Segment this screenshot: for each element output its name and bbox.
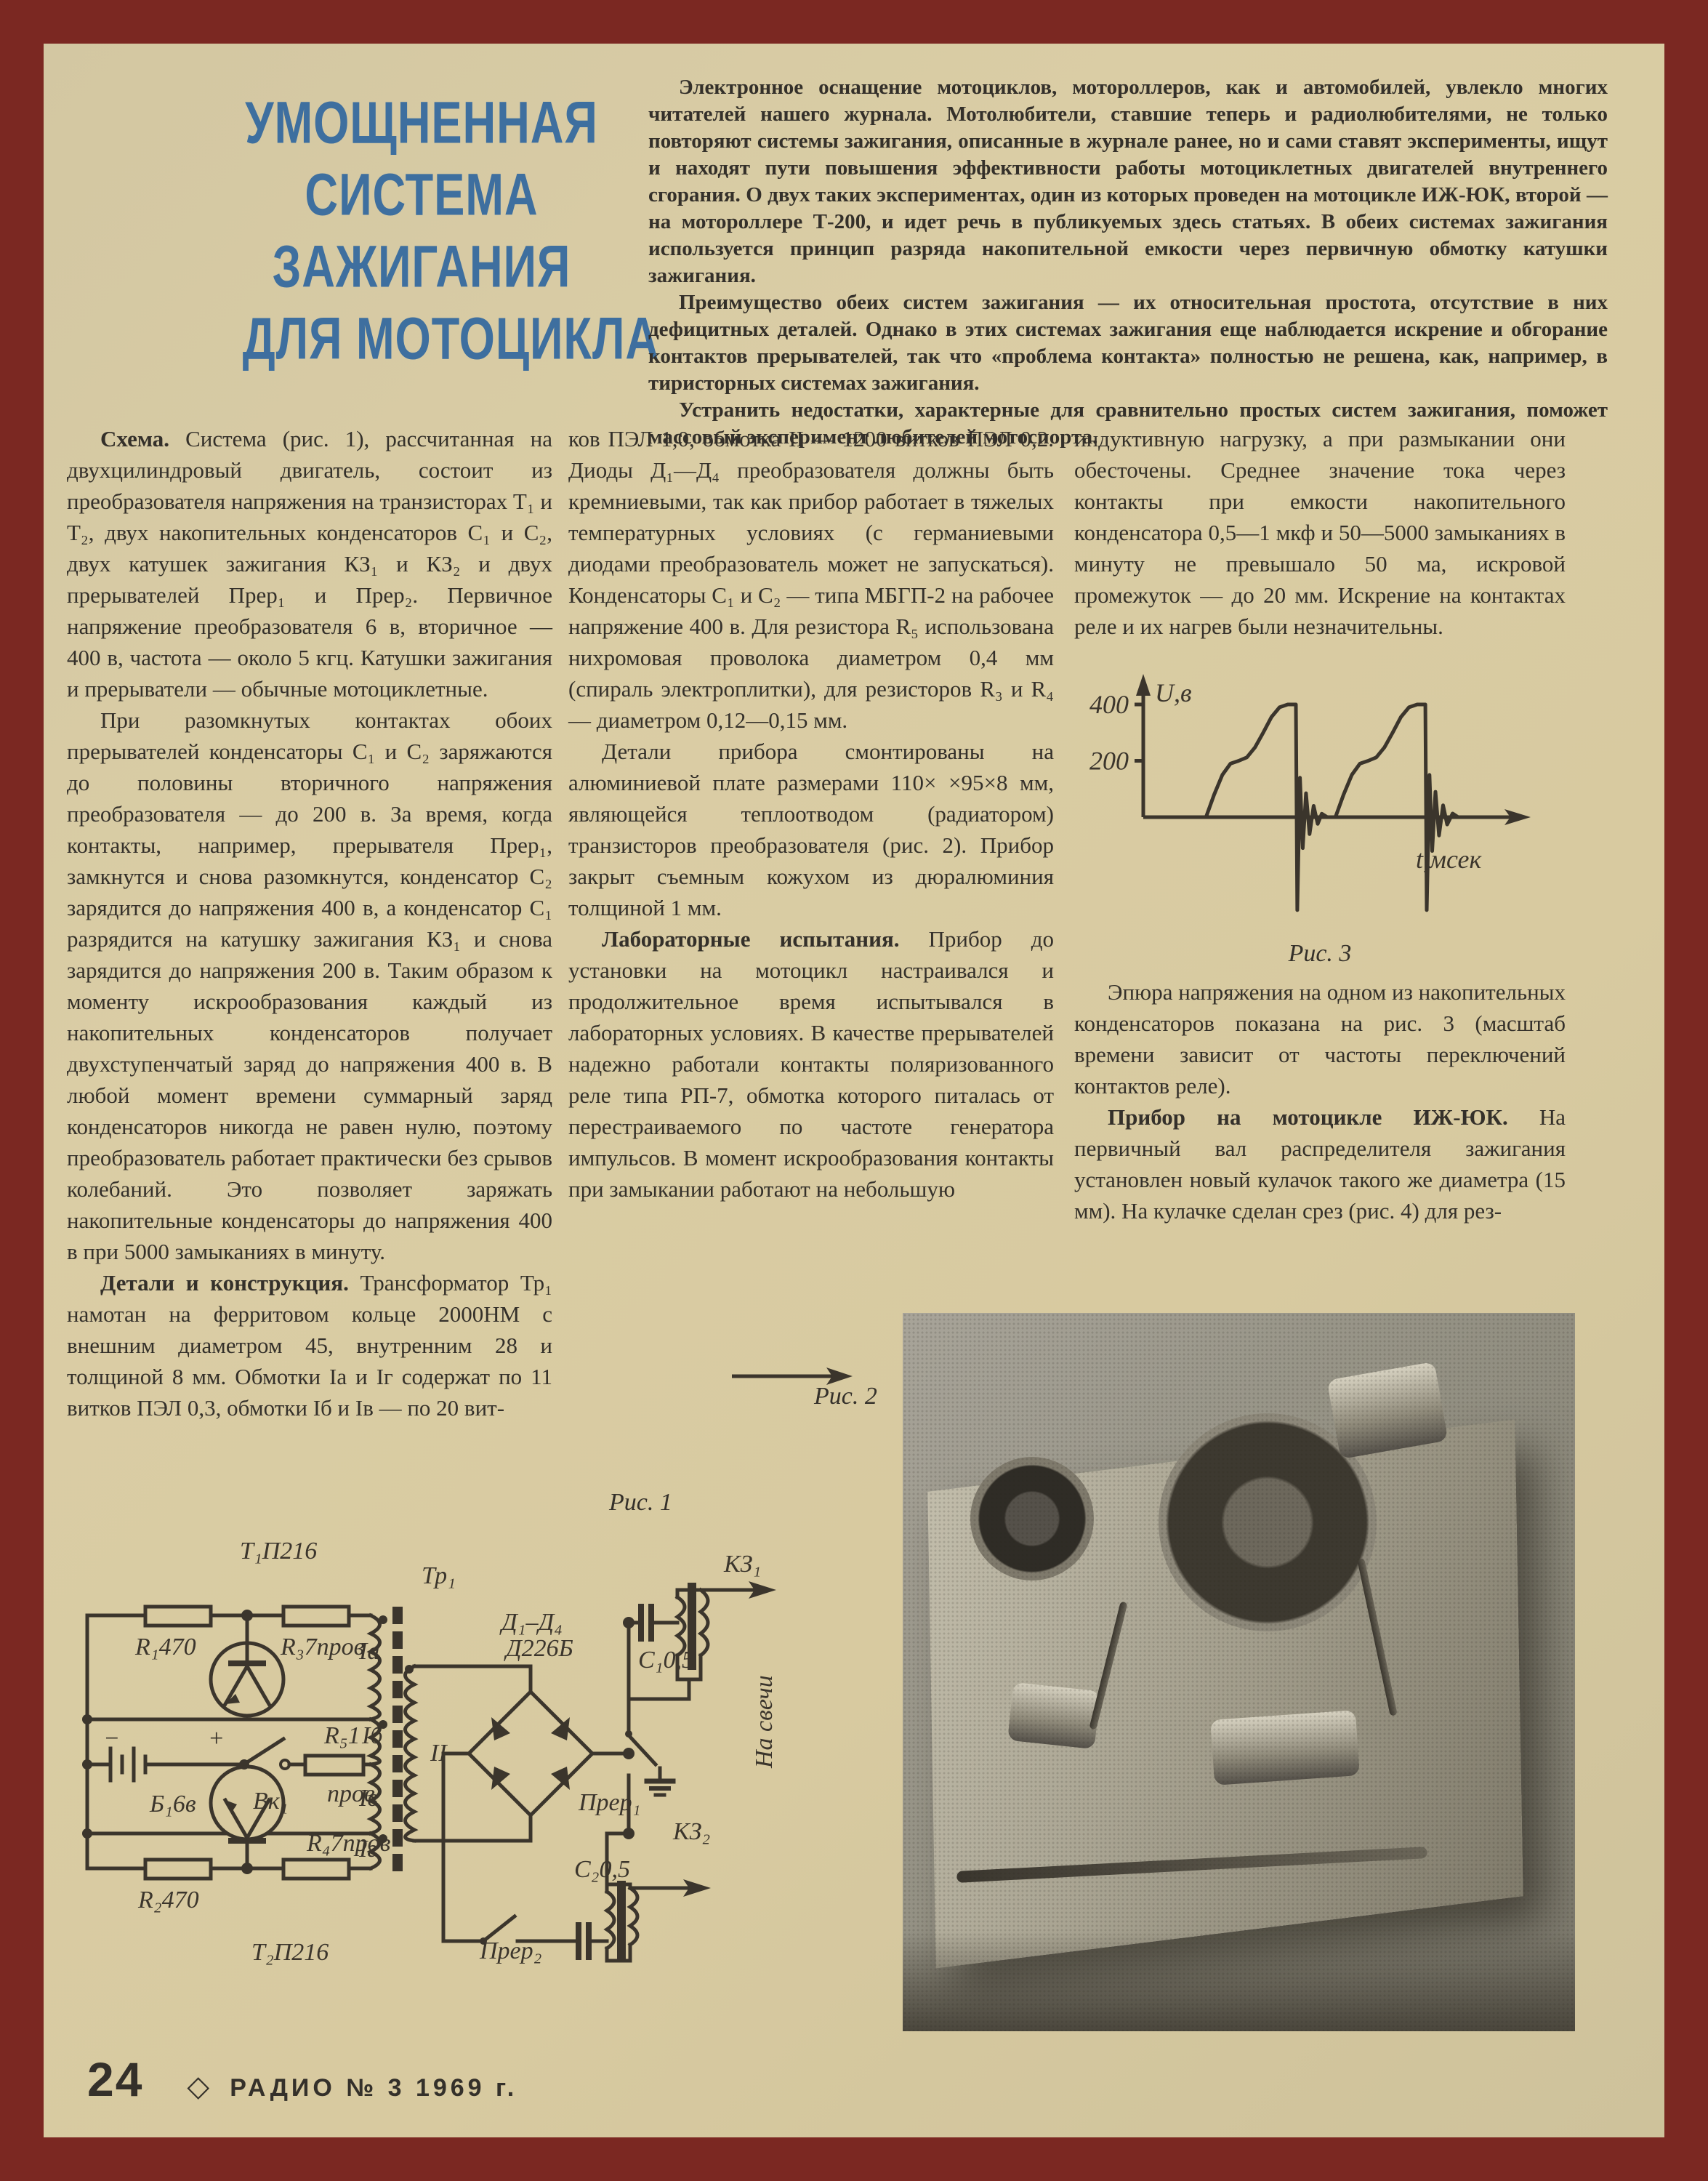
svg-text:U,в: U,в (1155, 678, 1192, 707)
photo-capacitor-can (1007, 1682, 1100, 1749)
paragraph: индуктивную нагрузку, а при размыкании о… (1074, 423, 1566, 642)
schematic-label: R₁470 (134, 1634, 196, 1660)
schematic-label: Т₁П216 (240, 1538, 317, 1565)
figure-2-caption: Рис. 2 (814, 1383, 877, 1410)
figure-2-photo-device-on-plate (903, 1313, 1575, 2031)
schematic-label: Прер₂ (479, 1937, 541, 1964)
figure-3-voltage-chart: 200400U,вt,мсек Рис. 3 (1074, 661, 1566, 969)
schematic-label: II (430, 1740, 448, 1767)
schematic-label: Т₂П216 (251, 1939, 329, 1966)
paragraph-text: Эпюра напряжения на одном из накопительн… (1074, 979, 1566, 1098)
title-line-4: ДЛЯ МОТОЦИКЛА (243, 298, 601, 380)
journal-issue-label: РАДИО № 3 1969 г. (230, 2074, 517, 2102)
schematic-label: R₅1 (323, 1722, 360, 1749)
photo-toroid-transformer (970, 1457, 1094, 1580)
diamond-icon: ◇ (187, 2069, 209, 2103)
paragraph-text: Прибор до установки на мотоцикл настраив… (568, 926, 1054, 1202)
photo-ignition-coil (1159, 1413, 1377, 1631)
page-number: 24 (87, 2052, 143, 2107)
photo-capacitor-can (1327, 1362, 1449, 1459)
paragraph-lead: Лабораторные испытания. (602, 926, 900, 952)
svg-text:200: 200 (1089, 747, 1129, 776)
schematic-label: R₄7пров (306, 1830, 391, 1857)
paragraph: Детали и конструкция. Трансформатор Тр₁ … (67, 1267, 552, 1423)
intro-paragraph: Преимущество обеих систем зажигания — их… (648, 289, 1608, 397)
paragraph-lead: Схема. (100, 426, 169, 451)
schematic-label: Д₁–Д₄ (499, 1609, 563, 1636)
figure-3-caption: Рис. 3 (1074, 938, 1566, 969)
paragraph: Детали прибора смонтированы на алюминиев… (568, 736, 1054, 923)
schematic-label: КЗ₂ (672, 1818, 710, 1845)
schematic-label: R₂470 (137, 1887, 199, 1913)
schematic-label: Тр₁ (422, 1562, 456, 1589)
schematic-label: Iа (358, 1638, 379, 1665)
schematic-label: Прер₁ (578, 1789, 640, 1816)
paragraph-lead: Детали и конструкция. (100, 1270, 349, 1296)
paragraph: Лабораторные испытания. Прибор до устано… (568, 923, 1054, 1205)
schematic-label: C₁0,5 (638, 1647, 694, 1674)
schematic-label: Iб (361, 1722, 384, 1749)
magazine-page: УМОЩНЕННАЯ СИСТЕМА ЗАЖИГАНИЯ ДЛЯ МОТОЦИК… (0, 0, 1708, 2181)
photo-wiring (1089, 1602, 1127, 1730)
ignition-circuit-schematic: Т₁П216R₁470R₃7провТр₁Д₁–Д₄Д226БIаIбR₅1пр… (65, 1514, 807, 2023)
title-line-2: СИСТЕМА (243, 154, 601, 236)
photo-wiring (956, 1847, 1427, 1883)
paragraph: Эпюра напряжения на одном из накопительн… (1074, 976, 1566, 1101)
paragraph-text: Детали прибора смонтированы на алюминиев… (568, 739, 1054, 920)
photo-relay-box (1210, 1710, 1360, 1786)
body-column-2: ков ПЭЛ 1,0, обмотка II — 1200 витков ПЭ… (568, 423, 1054, 1205)
schematic-label: C₂0,5 (574, 1856, 630, 1883)
paragraph-text: При разомкнутых контактах обоих прерыват… (67, 707, 552, 1264)
paragraph-text: Система (рис. 1), рассчитанная на двухци… (67, 426, 552, 702)
paragraph: При разомкнутых контактах обоих прерыват… (67, 704, 552, 1267)
article-title: УМОЩНЕННАЯ СИСТЕМА ЗАЖИГАНИЯ ДЛЯ МОТОЦИК… (218, 87, 625, 375)
paragraph: Схема. Система (рис. 1), рассчитанная на… (67, 423, 552, 704)
paragraph-text: индуктивную нагрузку, а при размыкании о… (1074, 426, 1566, 639)
body-column-3: индуктивную нагрузку, а при размыкании о… (1074, 423, 1566, 1226)
intro-paragraph: Электронное оснащение мотоциклов, моторо… (648, 74, 1608, 289)
schematic-label: Д226Б (504, 1635, 573, 1662)
paragraph: ков ПЭЛ 1,0, обмотка II — 1200 витков ПЭ… (568, 423, 1054, 736)
svg-text:400: 400 (1089, 690, 1129, 719)
intro-block: Электронное оснащение мотоциклов, моторо… (648, 74, 1608, 451)
schematic-label: Iв (358, 1785, 378, 1812)
figure-1-caption: Рис. 1 (609, 1489, 672, 1517)
schematic-label: КЗ₁ (723, 1551, 761, 1578)
schematic-label: R₃7пров (280, 1634, 365, 1660)
paragraph-text: ков ПЭЛ 1,0, обмотка II — 1200 витков ПЭ… (568, 426, 1054, 733)
voltage-waveform-chart: 200400U,вt,мсек (1074, 661, 1554, 930)
photo-shadow (903, 1931, 1575, 2031)
photo-wiring (1357, 1558, 1398, 1716)
schematic-label: − (103, 1725, 120, 1752)
paragraph: Прибор на мотоцикле ИЖ-ЮК. На первичный … (1074, 1101, 1566, 1226)
title-line-3: ЗАЖИГАНИЯ (243, 226, 601, 308)
schematic-label: Б₁6в (149, 1791, 196, 1817)
photo-aluminium-plate (927, 1419, 1523, 1968)
schematic-label: + (208, 1725, 225, 1752)
paragraph-lead: Прибор на мотоцикле ИЖ-ЮК. (1108, 1104, 1508, 1130)
schematic-label: На свечи (751, 1675, 778, 1769)
schematic-label: Вк₁ (253, 1788, 289, 1815)
title-line-1: УМОЩНЕННАЯ (243, 82, 601, 164)
page-footer: 24 ◇ РАДИО № 3 1969 г. (87, 2052, 517, 2107)
body-column-1: Схема. Система (рис. 1), рассчитанная на… (67, 423, 552, 1423)
